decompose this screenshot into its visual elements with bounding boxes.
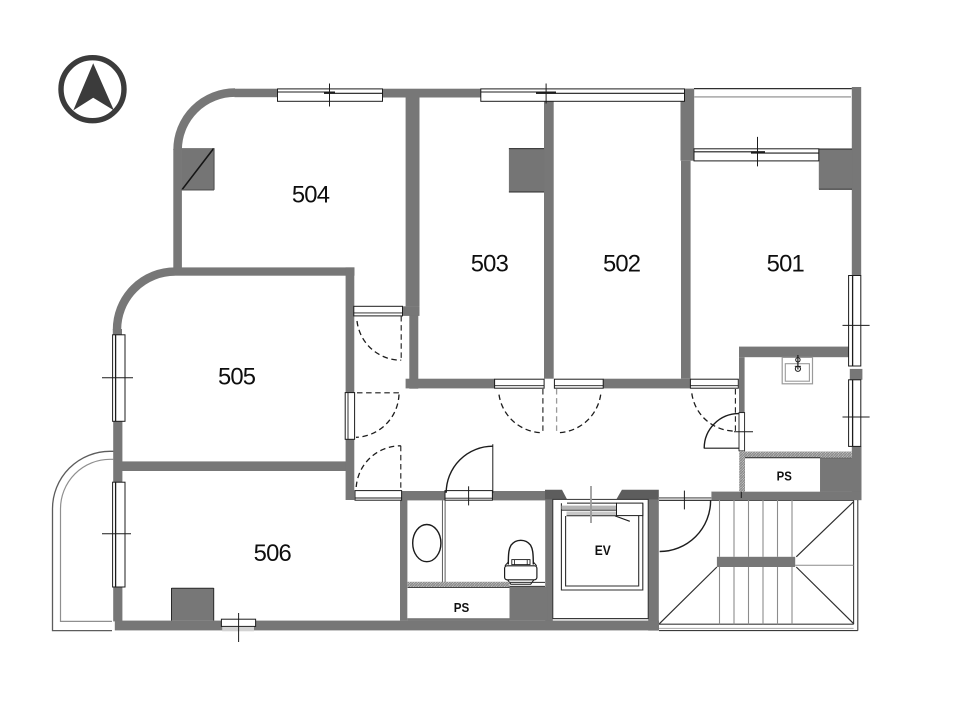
svg-text:502: 502 — [603, 251, 641, 278]
svg-text:501: 501 — [767, 251, 805, 278]
svg-text:EV: EV — [595, 543, 611, 559]
svg-text:506: 506 — [254, 540, 292, 567]
svg-text:505: 505 — [218, 364, 256, 391]
svg-text:504: 504 — [292, 182, 330, 209]
svg-text:PS: PS — [454, 600, 470, 615]
svg-text:503: 503 — [471, 251, 509, 278]
svg-text:PS: PS — [777, 469, 792, 484]
